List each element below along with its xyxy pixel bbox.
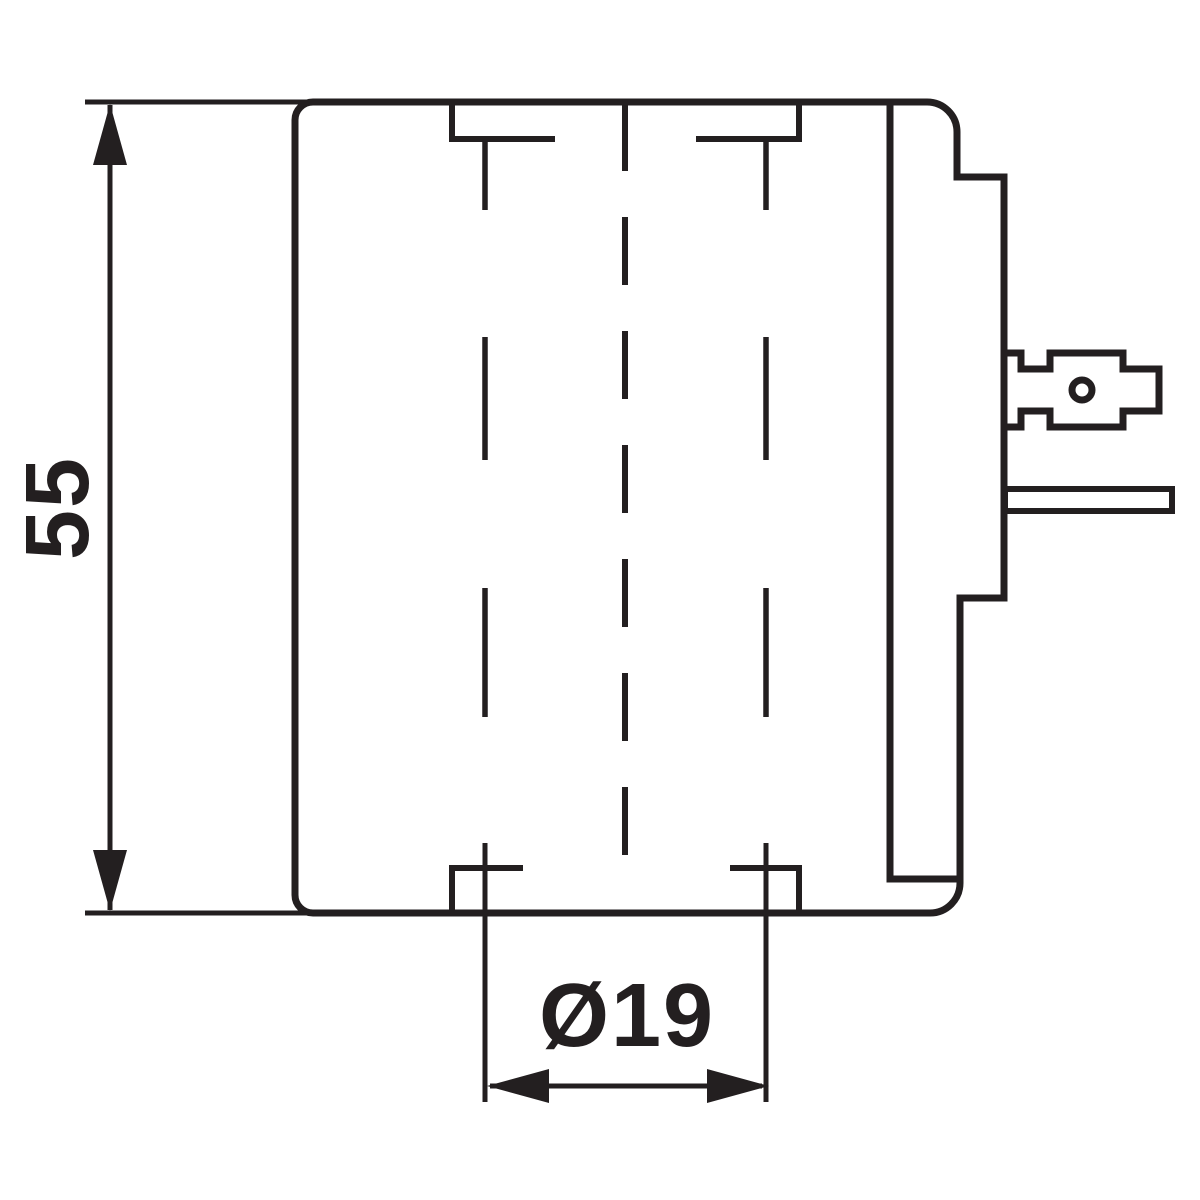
connector-screw-hole-icon: [1072, 380, 1092, 400]
technical-drawing: 55 Ø19: [0, 0, 1200, 1200]
bore-notch-top-left: [452, 102, 555, 139]
coil-body-outline: [295, 102, 1004, 913]
stroke-layer: [85, 102, 1172, 1102]
din-connector-outline: [1004, 353, 1159, 427]
height-arrow-up-icon: [93, 104, 127, 165]
drawing-canvas: 55 Ø19: [0, 0, 1200, 1200]
height-dimension-label: 55: [8, 456, 108, 560]
diameter-arrow-left-icon: [487, 1069, 549, 1103]
diameter-arrow-right-icon: [707, 1069, 769, 1103]
fill-layer: 55 Ø19: [8, 104, 769, 1103]
body-flange-divider-line: [890, 102, 957, 879]
bore-notch-top-right: [696, 102, 799, 139]
height-arrow-down-icon: [93, 850, 127, 911]
diameter-dimension-label: Ø19: [539, 966, 715, 1066]
terminal-pin: [1005, 489, 1172, 511]
